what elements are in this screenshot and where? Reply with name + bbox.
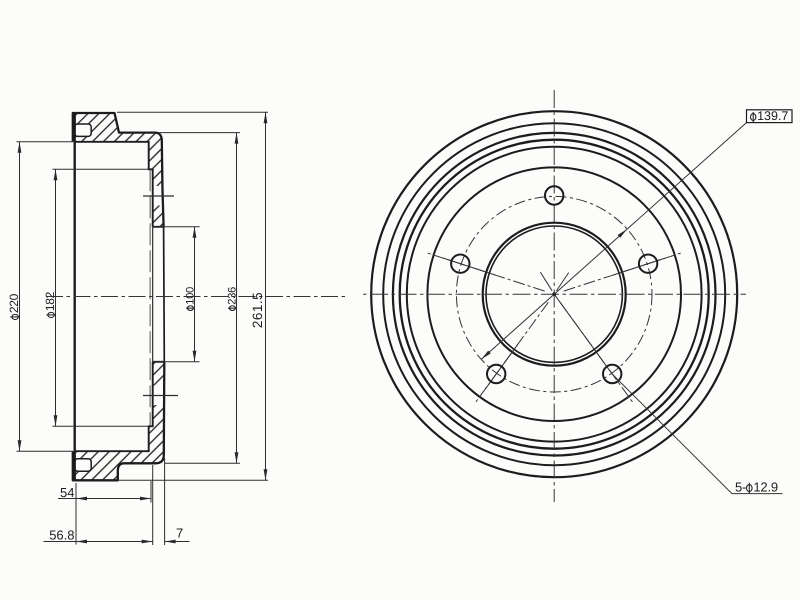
svg-text:220: 220 (7, 293, 21, 313)
svg-text:261.5: 261.5 (250, 292, 265, 328)
svg-text:5-: 5- (735, 480, 746, 495)
svg-text:139.7: 139.7 (757, 109, 788, 123)
svg-text:7: 7 (176, 526, 183, 541)
svg-text:182: 182 (43, 291, 57, 311)
svg-text:236: 236 (226, 287, 238, 305)
svg-text:54: 54 (60, 485, 74, 500)
svg-text:12.9: 12.9 (753, 480, 778, 495)
svg-text:56.8: 56.8 (49, 528, 74, 543)
svg-text:100: 100 (184, 287, 196, 305)
